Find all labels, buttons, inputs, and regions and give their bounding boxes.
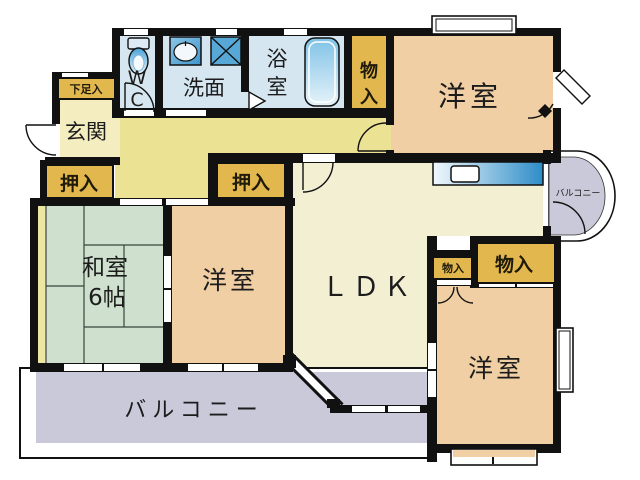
kitchen-counter xyxy=(433,162,543,185)
storage-top-label-1: 物 xyxy=(360,60,378,82)
washing-machine-icon xyxy=(211,37,241,65)
shoe-storage-label: 下足入 xyxy=(70,83,103,96)
washroom-label: 洗面 xyxy=(183,76,225,100)
main-balcony-label: バルコニー xyxy=(124,398,264,423)
japanese-room xyxy=(46,203,165,365)
storage-small-label: 物入 xyxy=(442,261,464,275)
floorplan: 下足入 玄関 W C 洗面 浴 室 物 入 洋室 押入 押入 和室 6帖 洋室 … xyxy=(0,0,640,480)
entrance-label: 玄関 xyxy=(65,120,107,144)
western-bottomright-label: 洋室 xyxy=(468,354,524,383)
bathroom-label-2: 室 xyxy=(267,75,288,99)
japanese-room-label: 和室 xyxy=(82,255,128,281)
storage-large-label: 物入 xyxy=(495,253,533,276)
kitchen-sink xyxy=(451,166,479,182)
wc-label-c: C xyxy=(130,89,143,111)
wc-label-w: W xyxy=(128,67,147,89)
window-right-br xyxy=(556,328,573,392)
storage-top-label-2: 入 xyxy=(360,87,378,108)
window-top-right xyxy=(432,16,516,34)
bay-window-bottom-br xyxy=(451,449,537,465)
western-middle-label: 洋室 xyxy=(202,266,258,295)
closet-mid-label: 押入 xyxy=(232,171,270,194)
japanese-room-size-label: 6帖 xyxy=(88,285,126,311)
bathroom-label-1: 浴 xyxy=(267,47,288,71)
bathtub-icon xyxy=(305,38,339,106)
entrance-door xyxy=(26,125,56,155)
western-topright-label: 洋室 xyxy=(438,80,502,113)
sink-icon xyxy=(170,37,201,65)
small-balcony-label: バルコニー xyxy=(556,188,601,199)
closet-left-label: 押入 xyxy=(60,172,98,195)
ldk-label: ＬＤＫ xyxy=(322,272,415,303)
